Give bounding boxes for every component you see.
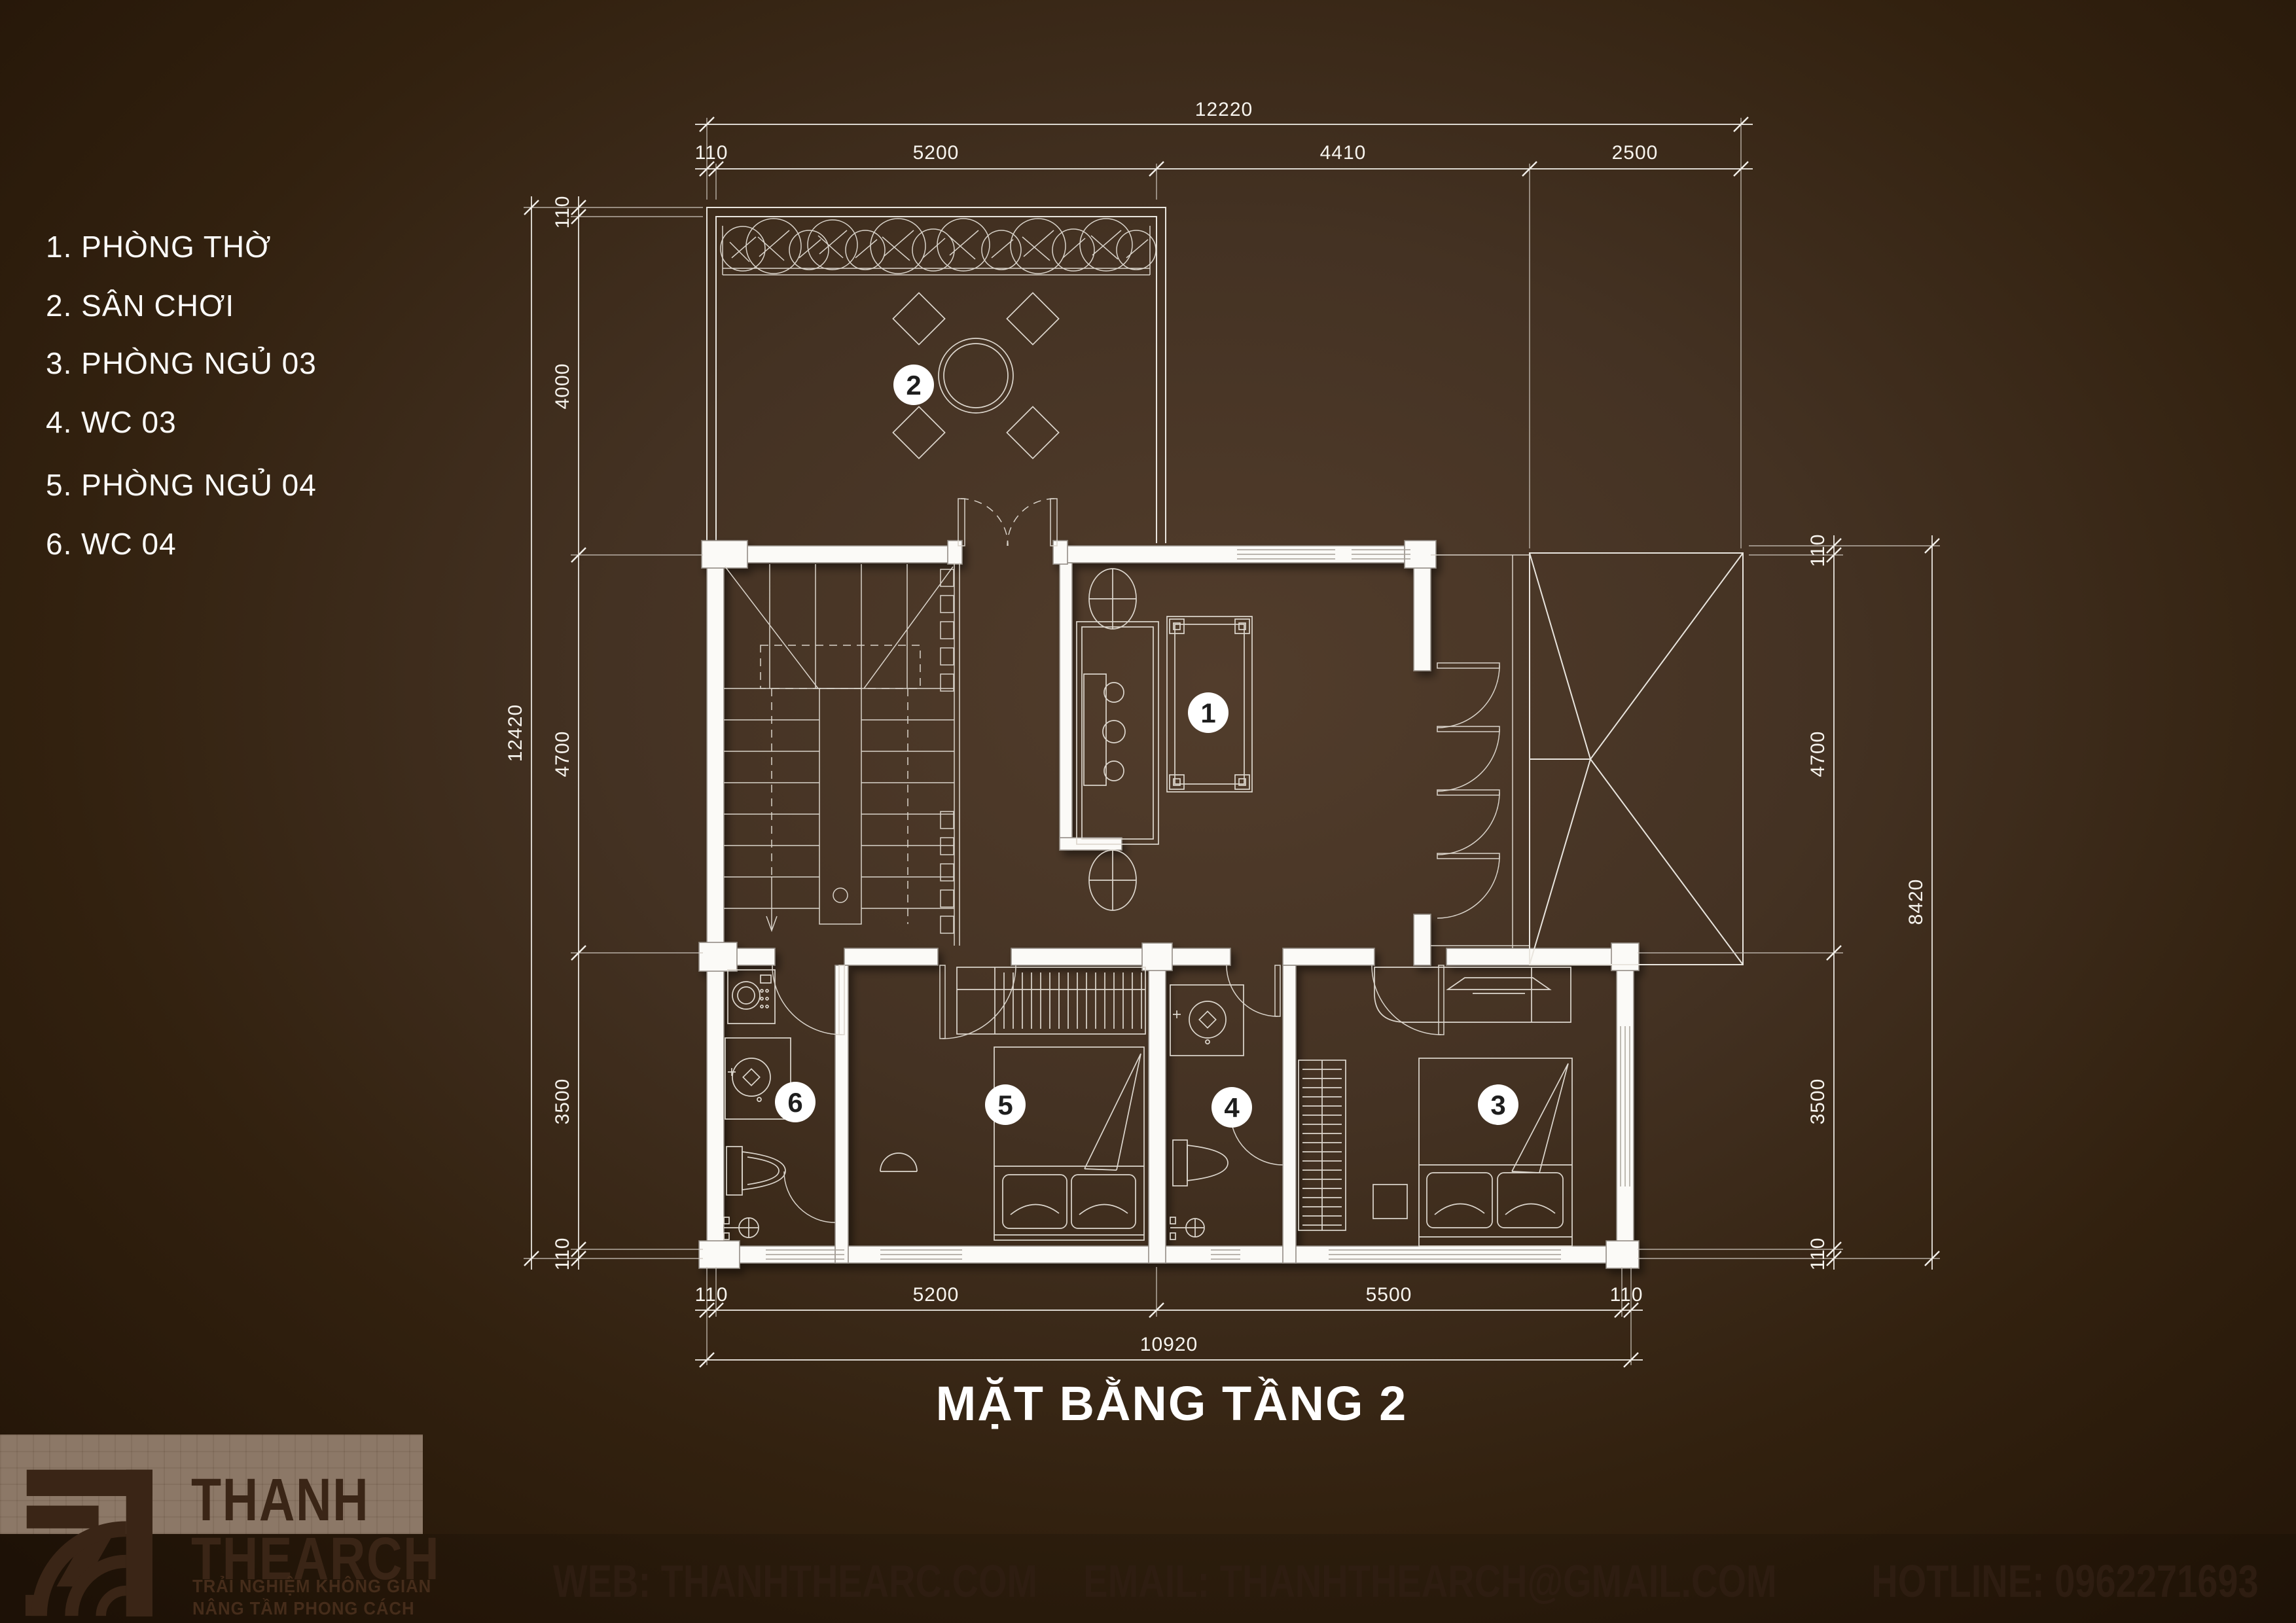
windows [766, 550, 1630, 1259]
page-title: MẶT BẰNG TẦNG 2 [936, 1376, 1408, 1431]
brand-tagline-line1: TRẢI NGHIỆM KHÔNG GIAN [192, 1576, 431, 1597]
ritual-drum [1089, 569, 1136, 629]
svg-text:4000: 4000 [552, 363, 573, 410]
svg-text:5200: 5200 [913, 142, 960, 164]
svg-text:5200: 5200 [913, 1284, 960, 1306]
svg-text:110: 110 [552, 1238, 573, 1271]
legend-item-bedroom03: 3. PHÒNG NGỦ 03 [46, 346, 317, 381]
dimension-bottom: 110 5200 5500 110 10920 [695, 1267, 1643, 1367]
walls [699, 541, 1639, 1268]
bedroom03 [1299, 967, 1572, 1246]
bedroom03-door [1372, 965, 1444, 1035]
badge-wc03: 4 [1211, 1087, 1252, 1128]
wc04-shower-door [784, 1171, 835, 1222]
stair-direction-arrow [766, 877, 777, 931]
svg-text:4700: 4700 [1807, 731, 1829, 777]
closet-bedroom03 [1299, 1060, 1346, 1230]
svg-text:5500: 5500 [1366, 1284, 1412, 1306]
wc04-room-door [772, 965, 844, 1035]
svg-text:3500: 3500 [1807, 1079, 1829, 1125]
plants [721, 219, 1156, 274]
footer-website: WEB: THANHTHEARC.COM [553, 1555, 1037, 1607]
brand-tagline-line2: NÂNG TẦM PHONG CÁCH [192, 1598, 414, 1619]
footer-hotline: HOTLINE: 0962271693 [1871, 1555, 2258, 1607]
ritual-bell [1089, 850, 1136, 910]
legend-item-bedroom04: 5. PHÒNG NGỦ 04 [46, 467, 317, 503]
folding-doors-terrace [1437, 663, 1499, 918]
nightstand-bedroom03 [1373, 1185, 1407, 1219]
svg-text:1: 1 [1200, 698, 1215, 728]
shower-wc03 [1170, 1217, 1204, 1240]
svg-text:4: 4 [1224, 1092, 1240, 1123]
bed-bedroom04 [994, 1047, 1144, 1240]
svg-text:110: 110 [695, 142, 728, 164]
dimension-right: 110 4700 3500 110 8420 [1638, 534, 1940, 1271]
legend-item-courtyard: 2. SÂN CHƠI [46, 288, 234, 323]
dimension-top: 12220 110 5200 4410 2500 [695, 99, 1753, 548]
courtyard-double-door [958, 499, 1057, 546]
page-canvas: 1 2 3 4 5 6 [0, 0, 2296, 1623]
legend-item-wc03: 4. WC 03 [46, 404, 177, 440]
svg-text:4410: 4410 [1320, 142, 1367, 164]
svg-text:110: 110 [552, 196, 573, 229]
svg-text:12220: 12220 [1195, 99, 1253, 120]
svg-text:10920: 10920 [1140, 1334, 1198, 1355]
svg-text:110: 110 [1807, 534, 1829, 567]
washing-machine [728, 970, 775, 1024]
svg-text:110: 110 [695, 1284, 728, 1306]
pouf-bedroom04 [880, 1153, 917, 1171]
shower-wc04 [724, 1217, 759, 1240]
terrace [1431, 555, 1530, 948]
hip-roof [1530, 553, 1743, 965]
badge-courtyard: 2 [893, 365, 934, 405]
svg-text:110: 110 [1807, 1238, 1829, 1271]
courtyard-san-choi [707, 207, 1166, 546]
toilet-wc03 [1173, 1140, 1228, 1186]
svg-text:110: 110 [1610, 1284, 1643, 1306]
worship-room [1077, 569, 1252, 910]
altar-console [1077, 622, 1158, 844]
wardrobe-bedroom04 [957, 967, 1145, 1034]
legend-item-worship: 1. PHÒNG THỜ [46, 229, 272, 264]
svg-text:3: 3 [1490, 1090, 1505, 1120]
thanh-thearch-logo-icon [18, 1461, 173, 1616]
room-badges: 1 2 3 4 5 6 [775, 365, 1518, 1128]
svg-text:8420: 8420 [1905, 879, 1927, 925]
svg-text:2500: 2500 [1612, 142, 1659, 164]
svg-text:4700: 4700 [552, 731, 573, 777]
svg-text:2: 2 [906, 370, 921, 401]
badge-bedroom04: 5 [985, 1084, 1026, 1125]
badge-bedroom03: 3 [1478, 1084, 1518, 1125]
toilet-wc04 [726, 1147, 785, 1195]
desk-bedroom03 [1374, 967, 1571, 1022]
svg-text:6: 6 [787, 1087, 802, 1118]
legend-item-wc04: 6. WC 04 [46, 526, 177, 562]
badge-worship-room: 1 [1188, 692, 1229, 733]
svg-text:5: 5 [997, 1090, 1013, 1120]
sink-wc03 [1170, 985, 1244, 1056]
plant-strip [721, 219, 1156, 275]
svg-text:3500: 3500 [552, 1079, 573, 1125]
footer-email: EMAIL: THANHTHEARCH@GMAIL.COM [1083, 1555, 1776, 1607]
svg-text:12420: 12420 [505, 704, 526, 762]
dimension-left: 110 4000 4700 3500 110 12420 [505, 196, 703, 1271]
staircase [724, 563, 960, 946]
wc03-room-door [1227, 965, 1280, 1016]
badge-wc04: 6 [775, 1082, 816, 1122]
